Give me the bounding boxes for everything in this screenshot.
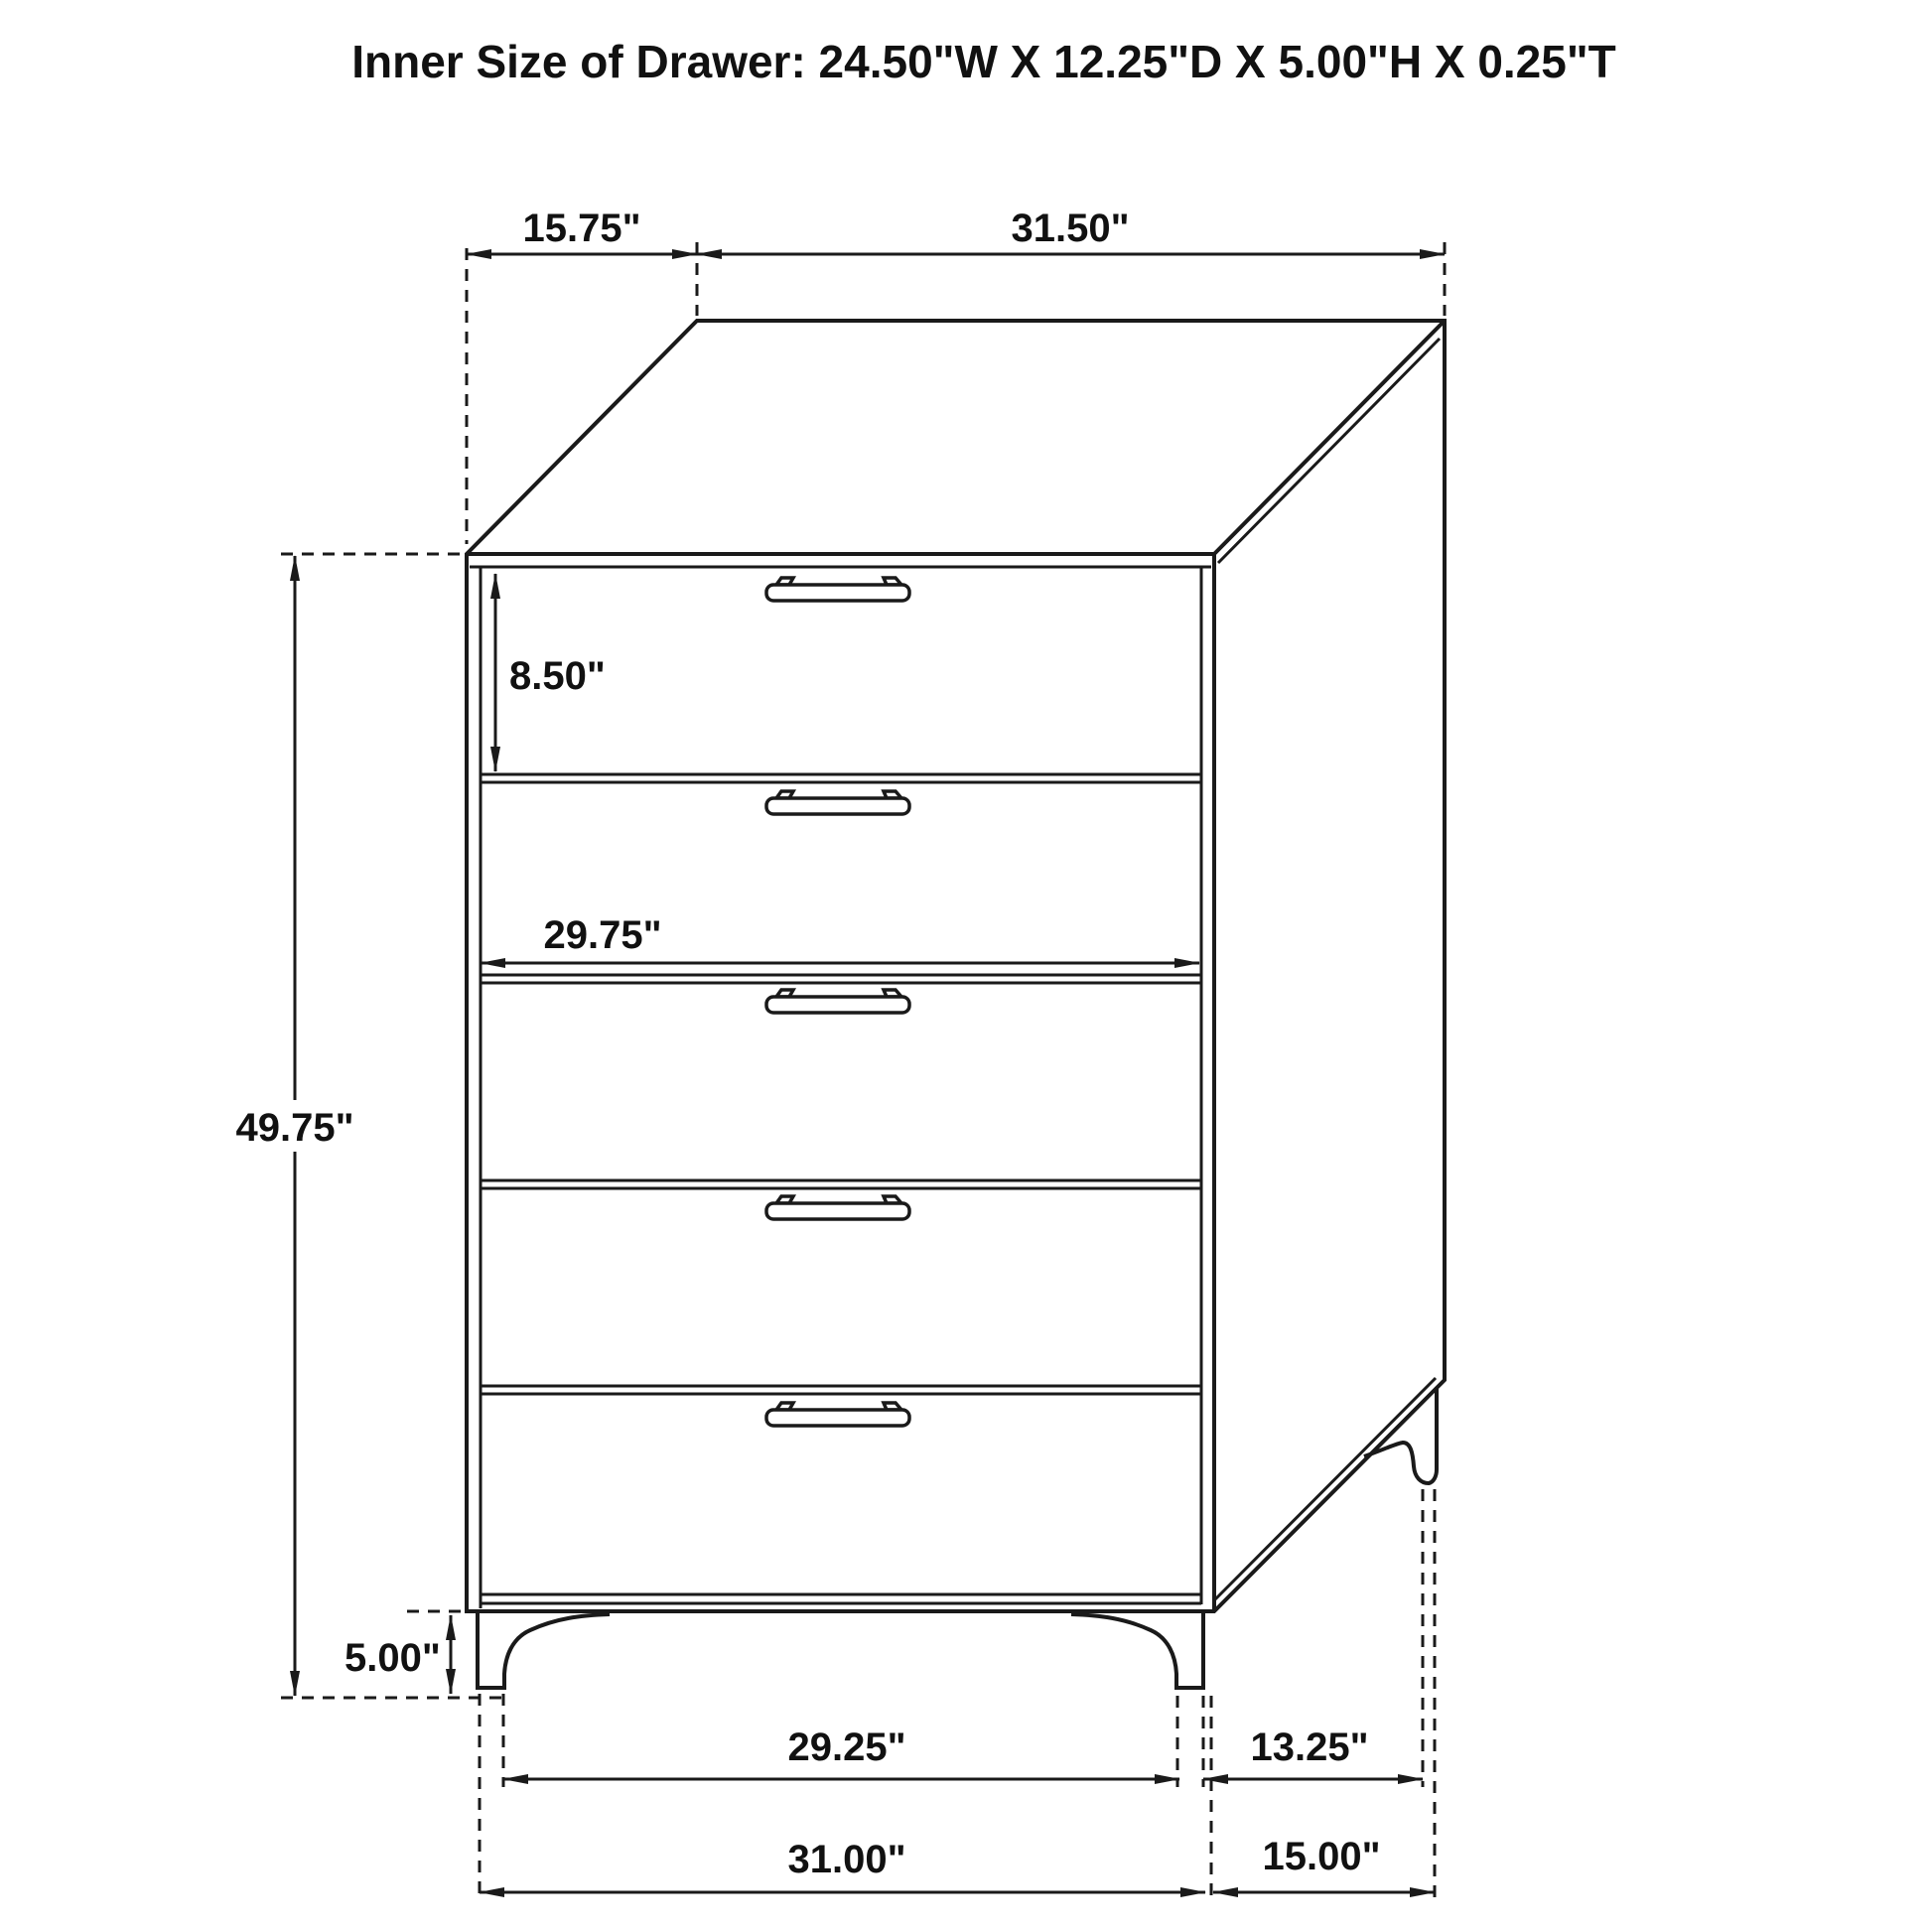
front-left-leg xyxy=(478,1613,610,1688)
dim-label-overall-height: 49.75" xyxy=(235,1106,353,1150)
dim-label-bottom-side-depth: 15.00" xyxy=(1262,1835,1380,1878)
dim-label-bottom-front-width: 31.00" xyxy=(787,1838,905,1881)
cabinet-silhouette xyxy=(467,321,1445,1611)
front-right-leg xyxy=(1071,1613,1203,1688)
dim-label-side-leg-span: 13.25" xyxy=(1250,1725,1368,1769)
dim-label-top-width: 31.50" xyxy=(1011,207,1129,250)
chest-dimension-diagram: Inner Size of Drawer: 24.50"W X 12.25"D … xyxy=(0,0,1932,1932)
dim-label-leg-height: 5.00" xyxy=(345,1636,441,1680)
diagram-canvas: Inner Size of Drawer: 24.50"W X 12.25"D … xyxy=(0,0,1932,1932)
cabinet-drawing xyxy=(467,321,1445,1688)
dim-label-drawer-width: 29.75" xyxy=(543,913,661,957)
diagram-title: Inner Size of Drawer: 24.50"W X 12.25"D … xyxy=(351,36,1616,87)
dim-label-front-leg-span: 29.25" xyxy=(787,1725,905,1769)
dim-label-drawer-height: 8.50" xyxy=(509,654,606,698)
dim-label-top-depth: 15.75" xyxy=(522,207,640,250)
